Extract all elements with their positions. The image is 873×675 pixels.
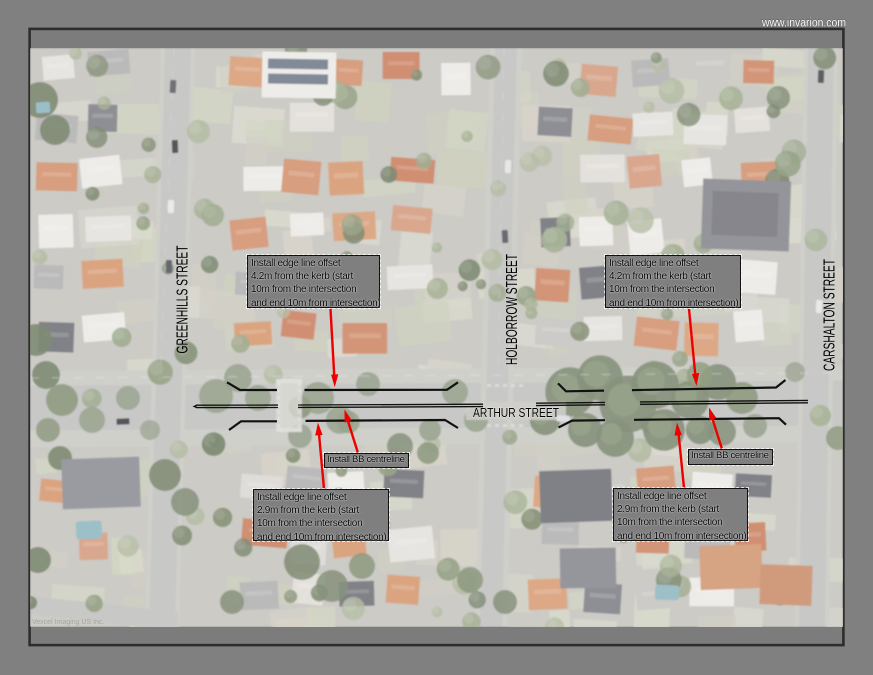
svg-text:ARTHUR STREET: ARTHUR STREET xyxy=(473,406,559,420)
svg-text:GREENHILLS STREET: GREENHILLS STREET xyxy=(175,245,192,353)
svg-text:HOLBORROW STREET: HOLBORROW STREET xyxy=(504,254,521,365)
svg-text:CARSHALTON STREET: CARSHALTON STREET xyxy=(822,259,839,371)
svg-text:www.invarion.com: www.invarion.com xyxy=(761,18,846,30)
svg-text:Vexcel Imaging US Inc.: Vexcel Imaging US Inc. xyxy=(32,619,104,626)
